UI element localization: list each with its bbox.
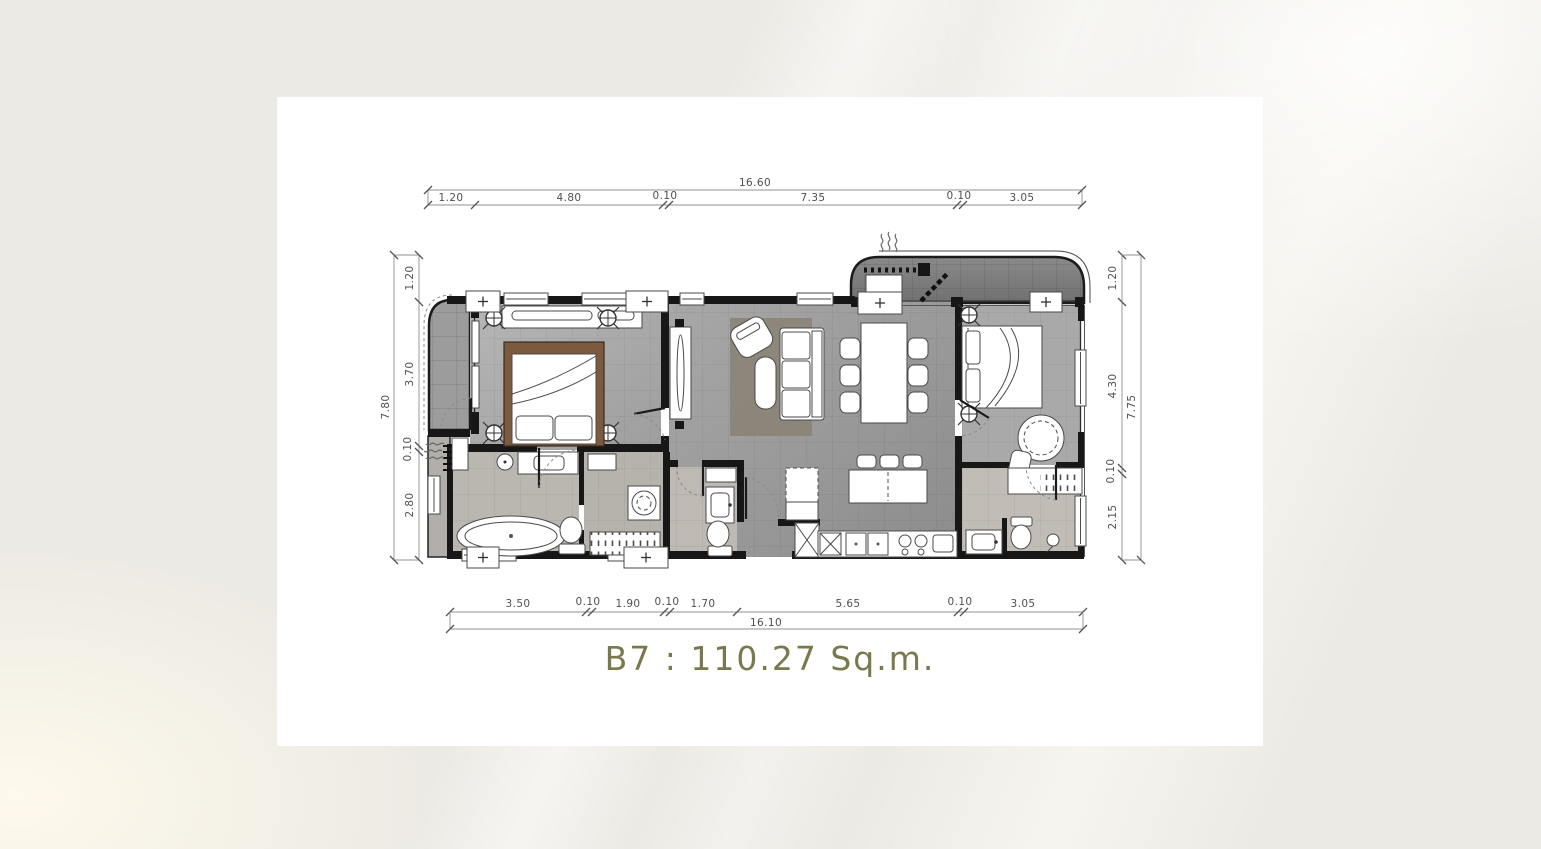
wall-tag: [1030, 292, 1062, 312]
window-ledge: [428, 476, 440, 514]
window-balcony-1: [472, 321, 479, 363]
dining-chair: [908, 392, 928, 413]
coffee-table: [755, 357, 776, 409]
dim-top-seg: 0.10: [653, 190, 678, 202]
dimension-chain-top: 16.60 1.20 4.80 0.10 7.35 0.10 3.05: [424, 177, 1086, 209]
dim-left-seg: 0.10: [402, 437, 414, 462]
bar-stool: [880, 455, 899, 468]
dining-set: [840, 323, 928, 423]
dimension-chain-left: 7.80 1.20 3.70 0.10 2.80: [380, 251, 423, 564]
dining-chair: [840, 338, 860, 359]
dim-bottom-seg: 5.65: [836, 598, 861, 610]
pillow: [555, 416, 592, 440]
dim-right-seg: 2.15: [1107, 505, 1119, 530]
window-balcony-2: [472, 366, 479, 408]
dim-top-seg: 3.05: [1010, 192, 1035, 204]
window-right-2: [1075, 496, 1086, 546]
dim-right-seg: 4.30: [1107, 374, 1119, 399]
plan-card: 16.60 1.20 4.80 0.10 7.35 0.10 3.05: [277, 97, 1263, 746]
wall-tag: [858, 292, 902, 314]
kitchen-counter: [818, 531, 957, 557]
window-top-2: [582, 293, 628, 305]
dim-bottom-total: 16.10: [750, 617, 782, 629]
dim-left-seg: 3.70: [404, 362, 416, 387]
condenser-unit: [452, 438, 468, 470]
bar-stool: [903, 455, 922, 468]
dim-bottom-seg: 0.10: [655, 596, 680, 608]
unit-area-title: B7 : 110.27 Sq.m.: [277, 639, 1263, 678]
dining-chair: [840, 365, 860, 386]
window-top-1: [504, 293, 548, 305]
dim-bottom-seg: 3.05: [1011, 598, 1036, 610]
shaft: [795, 523, 819, 557]
dim-right-total: 7.75: [1126, 395, 1138, 420]
dimension-chain-right: 1.20 4.30 0.10 2.15 7.75: [1105, 251, 1145, 564]
balcony-master: [424, 295, 470, 430]
toilet: [1011, 517, 1032, 549]
dim-top-total: 16.60: [739, 177, 771, 189]
toilet: [559, 517, 585, 554]
bar-stool: [857, 455, 876, 468]
dim-left-seg: 2.80: [404, 493, 416, 518]
bathroom-sink: [706, 487, 734, 523]
refrigerator: [786, 468, 818, 502]
washing-machine: [628, 486, 660, 520]
kitchen-island: [849, 455, 927, 503]
window-top-3: [680, 293, 704, 305]
dim-right-seg: 0.10: [1105, 459, 1117, 484]
dim-right-seg: 1.20: [1107, 266, 1119, 291]
bathroom-sink: [966, 530, 1002, 554]
pillow: [516, 416, 553, 440]
dim-bottom-seg: 0.10: [576, 596, 601, 608]
master-bed: [504, 342, 604, 446]
wall-tag: [467, 547, 499, 568]
pillow: [966, 369, 980, 402]
wall-tag: [466, 291, 500, 312]
ceiling-fixture-icon: [483, 422, 505, 444]
ceiling-fixture-icon: [597, 307, 619, 329]
wall-tag: [624, 547, 668, 568]
dim-top-seg: 0.10: [947, 190, 972, 202]
dim-bottom-seg: 1.90: [616, 598, 641, 610]
dimension-chain-bottom: 3.50 0.10 1.90 0.10 1.70 5.65 0.10 3.05 …: [446, 596, 1087, 633]
dim-top-seg: 4.80: [557, 192, 582, 204]
dim-left-seg: 1.20: [404, 266, 416, 291]
dining-table: [861, 323, 907, 423]
vanity-rack: [1008, 468, 1082, 494]
dim-bottom-seg: 3.50: [506, 598, 531, 610]
pillow: [966, 331, 980, 364]
dining-chair: [908, 338, 928, 359]
window-top-4: [797, 293, 833, 305]
window-right-1: [1075, 350, 1086, 406]
ceiling-fixture-icon: [958, 304, 980, 326]
dining-chair: [908, 365, 928, 386]
sofa: [780, 328, 824, 420]
dim-left-total: 7.80: [380, 395, 392, 420]
dim-bottom-seg: 1.70: [691, 598, 716, 610]
steam-icon: [881, 232, 897, 252]
dim-top-seg: 7.35: [801, 192, 826, 204]
dim-bottom-seg: 0.10: [948, 596, 973, 608]
dim-top-seg: 1.20: [439, 192, 464, 204]
wall-tag: [626, 291, 668, 312]
bed-2: [962, 326, 1042, 408]
dining-chair: [840, 392, 860, 413]
